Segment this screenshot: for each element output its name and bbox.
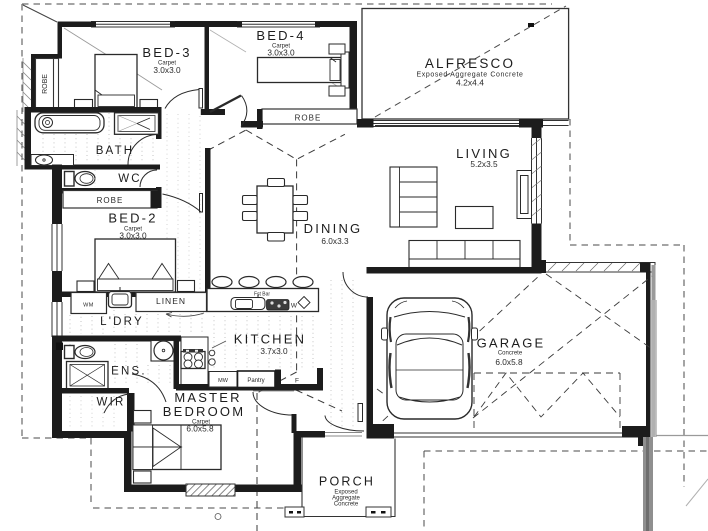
svg-text:MASTER: MASTER xyxy=(174,390,241,405)
svg-text:LINEN: LINEN xyxy=(156,296,186,306)
svg-text:MW: MW xyxy=(218,378,229,384)
svg-text:Concrete: Concrete xyxy=(498,351,523,357)
svg-text:ENS.: ENS. xyxy=(111,366,147,378)
svg-text:Concrete: Concrete xyxy=(334,502,359,508)
svg-text:BEDROOM: BEDROOM xyxy=(163,404,246,419)
svg-text:6.0x5.8: 6.0x5.8 xyxy=(186,424,214,434)
svg-text:3.0x3.0: 3.0x3.0 xyxy=(153,65,181,75)
svg-text:BATH: BATH xyxy=(96,145,135,157)
svg-text:BED-2: BED-2 xyxy=(108,211,157,226)
svg-text:BED-4: BED-4 xyxy=(256,28,305,43)
svg-text:BED-3: BED-3 xyxy=(142,45,191,60)
svg-text:L'DRY: L'DRY xyxy=(100,316,144,328)
svg-text:ALFRESCO: ALFRESCO xyxy=(425,56,515,71)
svg-text:6.0x5.8: 6.0x5.8 xyxy=(495,357,523,367)
svg-text:F: F xyxy=(295,378,299,385)
svg-text:Fst Bar: Fst Bar xyxy=(254,292,270,298)
svg-text:ROBE: ROBE xyxy=(295,114,322,123)
svg-text:PORCH: PORCH xyxy=(319,475,375,489)
svg-text:ROBE: ROBE xyxy=(97,196,124,205)
svg-text:W: W xyxy=(291,303,298,310)
svg-text:GARAGE: GARAGE xyxy=(477,336,546,351)
svg-text:WM: WM xyxy=(83,303,94,309)
svg-text:Pantry: Pantry xyxy=(247,378,264,384)
svg-text:WC: WC xyxy=(118,173,142,185)
svg-text:3.0x3.0: 3.0x3.0 xyxy=(267,48,295,58)
svg-text:6.0x3.3: 6.0x3.3 xyxy=(321,236,349,246)
svg-text:DINING: DINING xyxy=(304,221,363,236)
svg-text:4.2x4.4: 4.2x4.4 xyxy=(456,78,484,88)
svg-text:5.2x3.5: 5.2x3.5 xyxy=(470,159,498,169)
svg-text:KITCHEN: KITCHEN xyxy=(234,332,306,347)
svg-text:3.7x3.0: 3.7x3.0 xyxy=(260,346,288,356)
svg-text:ROBE: ROBE xyxy=(42,74,49,94)
